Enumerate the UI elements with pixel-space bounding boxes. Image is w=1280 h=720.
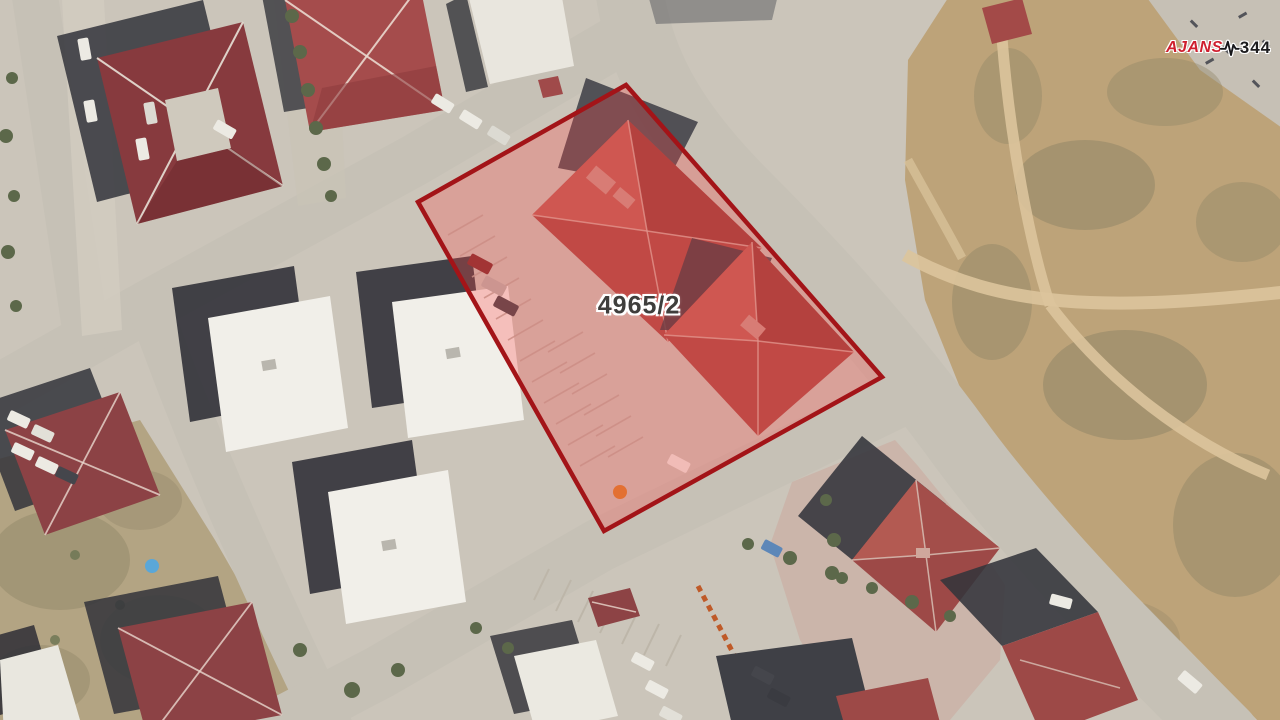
map-canvas: [0, 0, 1280, 720]
dirt-texture: [1015, 140, 1155, 230]
aerial-map: 4965/2 AJANS 344: [0, 0, 1280, 720]
dirt-texture: [1107, 58, 1223, 126]
road-shadow: [648, 0, 778, 24]
watermark-text-primary: AJANS: [1166, 39, 1223, 57]
playground-object: [145, 559, 159, 573]
parcel-number-label: 4965/2: [598, 292, 680, 321]
white-building: [208, 296, 348, 452]
dirt-texture: [952, 244, 1032, 360]
bush: [50, 635, 60, 645]
roof-unit: [916, 548, 930, 558]
watermark-text-number: 344: [1240, 38, 1271, 58]
pulse-icon: [1220, 37, 1242, 59]
watermark-logo: AJANS 344: [1166, 36, 1271, 60]
white-building: [328, 470, 466, 624]
bush: [70, 550, 80, 560]
